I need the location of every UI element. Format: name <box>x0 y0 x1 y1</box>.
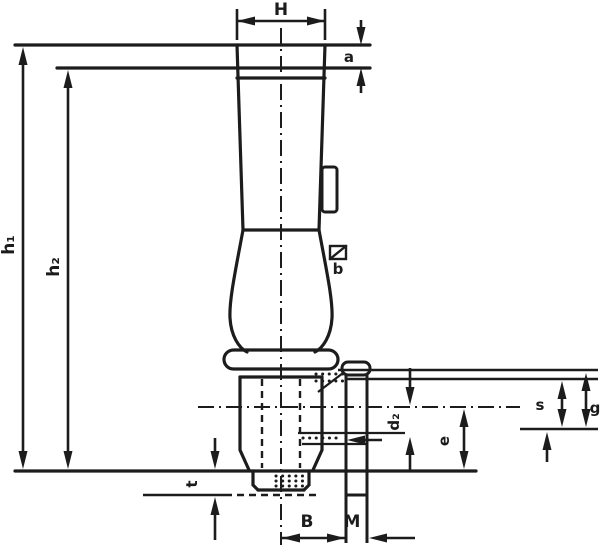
extension-lines <box>338 370 598 429</box>
grip-left-profile <box>230 230 247 352</box>
stub-left-side <box>253 471 258 490</box>
shaft-clip <box>322 167 337 212</box>
label-height-inner: h₂ <box>44 257 64 277</box>
dim-height-inner <box>64 70 73 469</box>
dim-cap-height <box>357 20 366 93</box>
sleeve-left-side <box>237 45 243 230</box>
flag-detail <box>330 246 346 259</box>
label-right-inner: s <box>536 396 545 414</box>
label-clip: b <box>333 260 344 278</box>
serration-dots <box>276 374 344 486</box>
label-right-outer: g <box>590 399 600 417</box>
dim-thread-width <box>369 534 415 543</box>
stub-right-side <box>304 471 309 490</box>
dim-stub-height <box>211 438 220 540</box>
label-stub-height: t <box>183 480 201 487</box>
technical-drawing-canvas: H a h₁ h₂ b d₂ e s g t B M <box>0 0 600 548</box>
label-boss-dia: d₂ <box>385 413 403 430</box>
pointer-arrow-small <box>543 432 552 462</box>
dim-height-outer <box>19 47 28 469</box>
dim-base-width <box>282 534 345 543</box>
dim-right-inner <box>558 381 567 427</box>
dimensions <box>19 9 591 543</box>
boss-left-side <box>240 377 249 470</box>
strip-cap <box>342 362 370 375</box>
label-base-width: B <box>301 512 314 532</box>
label-cap-height: a <box>344 48 354 66</box>
dim-boss <box>406 368 415 471</box>
label-height-outer: h₁ <box>0 235 19 255</box>
dim-center-to-base <box>460 409 469 469</box>
label-center-to-base: e <box>435 436 453 446</box>
part-outline <box>15 45 476 490</box>
label-head-width: H <box>274 0 288 20</box>
machine-handle-drawing: H a h₁ h₂ b d₂ e s g t B M <box>0 0 600 548</box>
label-thread-width: M <box>344 512 361 532</box>
